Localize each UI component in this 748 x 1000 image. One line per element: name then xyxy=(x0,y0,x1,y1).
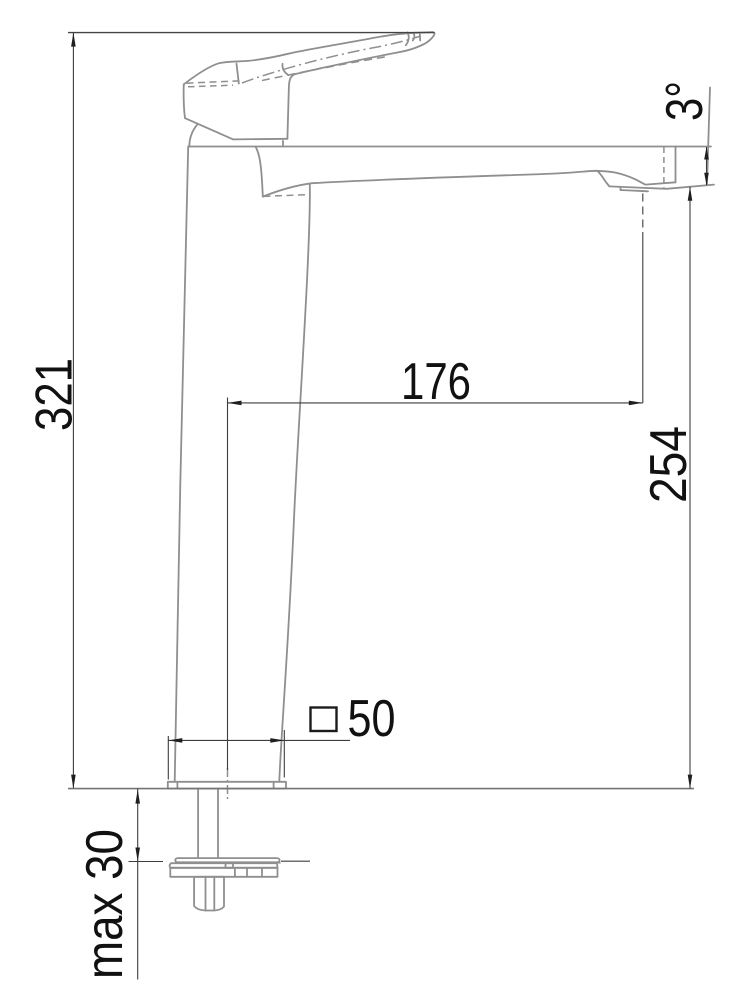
svg-text:50: 50 xyxy=(348,690,396,748)
svg-text:max 30: max 30 xyxy=(76,829,134,979)
svg-text:254: 254 xyxy=(640,426,698,503)
svg-text:176: 176 xyxy=(401,353,471,411)
svg-text:321: 321 xyxy=(26,358,84,431)
svg-text:3°: 3° xyxy=(656,81,714,121)
